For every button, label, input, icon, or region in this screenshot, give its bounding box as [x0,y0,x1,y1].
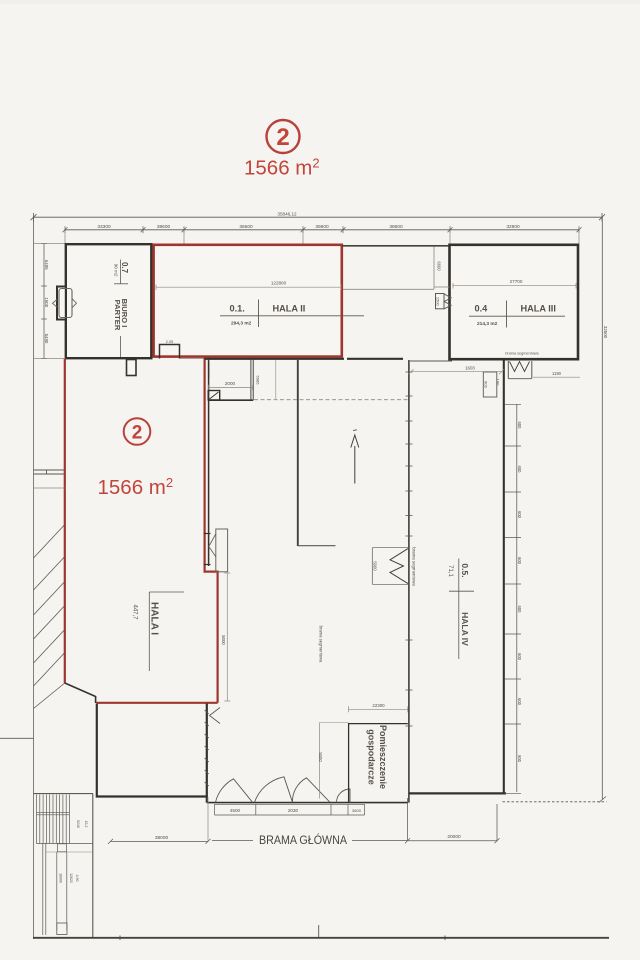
svg-text:1500: 1500 [436,297,441,307]
svg-text:2: 2 [132,423,143,444]
svg-text:4,90: 4,90 [75,875,79,882]
svg-text:447,7: 447,7 [132,604,138,620]
svg-text:12022: 12022 [69,873,73,883]
svg-text:5000: 5000 [318,752,323,762]
svg-text:214,3 m2: 214,3 m2 [477,321,498,327]
svg-text:38600: 38600 [157,224,171,230]
svg-text:38600: 38600 [389,224,403,230]
svg-text:2000: 2000 [225,381,236,386]
svg-text:gospodarcze: gospodarcze [367,729,377,785]
svg-text:PARTER: PARTER [113,300,122,331]
svg-text:5985: 5985 [256,376,261,386]
svg-text:27700: 27700 [510,279,523,284]
svg-text:0.5.: 0.5. [460,563,470,577]
svg-text:brama segmentowa: brama segmentowa [319,626,324,663]
svg-text:600: 600 [517,511,522,519]
svg-text:32500: 32500 [603,326,608,339]
svg-text:Pomieszczenie: Pomieszczenie [378,725,388,789]
svg-text:1190: 1190 [552,371,562,376]
svg-text:2030: 2030 [288,808,299,813]
svg-text:294,3 m2: 294,3 m2 [231,321,252,327]
svg-text:0.4: 0.4 [475,304,489,314]
svg-text:1603: 1603 [465,366,475,371]
svg-text:2: 2 [276,124,289,151]
svg-text:HALA II: HALA II [273,304,306,314]
svg-text:38000: 38000 [155,835,169,841]
svg-text:brama segmentowa: brama segmentowa [505,352,539,356]
svg-text:brama segmentowa: brama segmentowa [412,547,417,586]
svg-text:6485: 6485 [44,260,49,270]
svg-text:600: 600 [517,557,522,565]
svg-text:122800: 122800 [271,281,287,286]
svg-text:39600: 39600 [315,224,329,230]
svg-text:190: 190 [496,379,501,386]
svg-text:1566 m2: 1566 m2 [244,156,320,180]
svg-text:20000: 20000 [447,834,461,840]
svg-text:33300: 33300 [97,224,111,230]
svg-text:600: 600 [517,698,522,706]
svg-text:1566 m2: 1566 m2 [98,475,174,499]
svg-text:35846,12: 35846,12 [277,211,297,216]
svg-text:600: 600 [517,422,522,430]
svg-text:6600: 6600 [437,261,442,271]
svg-text:600: 600 [517,653,522,661]
svg-text:2.05: 2.05 [166,340,173,344]
svg-text:HALA III: HALA III [521,304,556,314]
svg-text:36600: 36600 [239,224,253,230]
svg-text:1500: 1500 [44,297,49,307]
svg-text:5000: 5000 [221,635,226,645]
svg-text:600: 600 [517,466,522,474]
svg-text:HALA IV: HALA IV [460,612,470,646]
svg-text:5000: 5000 [373,561,378,571]
svg-text:BRAMA GŁÓWNA: BRAMA GŁÓWNA [259,834,347,847]
svg-text:600: 600 [484,381,489,388]
svg-text:600: 600 [517,755,522,763]
svg-text:5240: 5240 [76,820,80,828]
svg-text:0.7: 0.7 [120,262,129,274]
svg-text:18000: 18000 [59,873,63,883]
svg-text:15,2: 15,2 [84,821,88,828]
svg-text:71,1: 71,1 [447,565,453,577]
svg-text:32800: 32800 [506,224,520,230]
svg-text:HALA I: HALA I [149,602,160,635]
svg-text:90 m2: 90 m2 [114,264,119,277]
svg-text:4500: 4500 [230,808,241,813]
svg-text:5480: 5480 [44,334,49,344]
svg-text:600: 600 [517,606,522,614]
svg-text:0.1.: 0.1. [230,304,245,314]
svg-text:3600: 3600 [352,808,362,813]
svg-text:22300: 22300 [372,703,385,708]
